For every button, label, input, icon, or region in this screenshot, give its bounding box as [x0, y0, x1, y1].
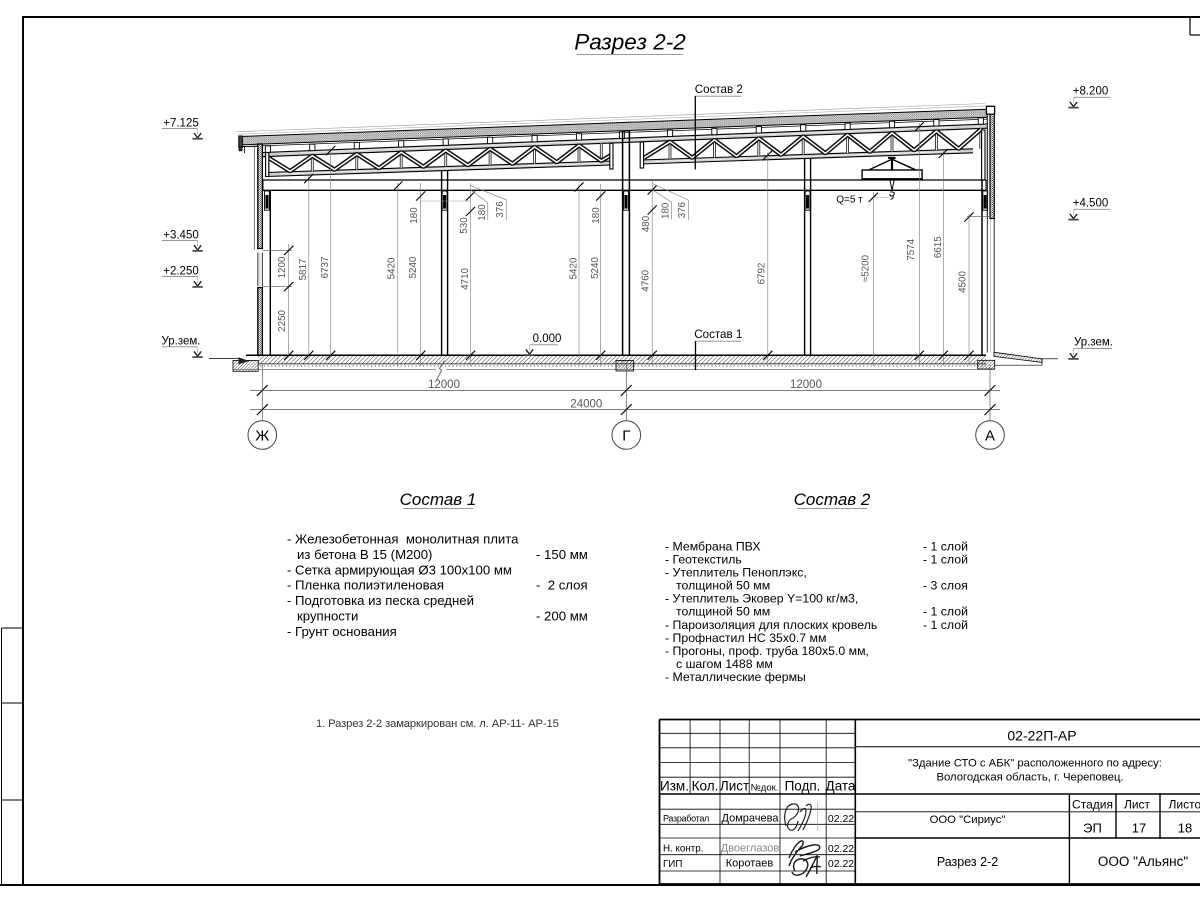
svg-text:4710: 4710 [460, 268, 471, 290]
svg-text:6615: 6615 [933, 236, 944, 258]
svg-text:Состав 2: Состав 2 [695, 83, 743, 96]
svg-text:А: А [985, 427, 995, 444]
svg-text:- Утеплитель Пеноплэкс,: - Утеплитель Пеноплэкс, [665, 566, 807, 580]
svg-text:1. Разрез 2-2 замаркирован см.: 1. Разрез 2-2 замаркирован см. л. АР-11-… [316, 718, 559, 730]
svg-text:Подп.: Подп. [785, 779, 821, 794]
svg-text:5240: 5240 [590, 257, 601, 279]
svg-text:Ж: Ж [255, 427, 269, 444]
svg-text:Изм.: Изм. [660, 779, 689, 794]
svg-text:7574: 7574 [906, 238, 917, 260]
svg-text:Ур.зем.: Ур.зем. [161, 336, 200, 348]
svg-text:5420: 5420 [386, 257, 397, 279]
svg-text:02-22П-АР: 02-22П-АР [1007, 728, 1076, 744]
svg-text:376: 376 [495, 201, 506, 218]
svg-text:18: 18 [1178, 821, 1192, 836]
svg-text:02.22: 02.22 [828, 843, 854, 855]
svg-text:- Грунт основания: - Грунт основания [287, 624, 397, 639]
svg-text:из бетона В 15 (М200): из бетона В 15 (М200) [297, 547, 432, 562]
svg-text:Двоеглазов: Двоеглазов [721, 843, 780, 855]
svg-text:- 3 слоя: - 3 слоя [923, 579, 968, 593]
svg-text:Разрез 2-2: Разрез 2-2 [574, 30, 686, 55]
svg-text:0.000: 0.000 [533, 333, 562, 345]
svg-text:- 1 слой: - 1 слой [923, 605, 968, 619]
svg-text:Листов: Листов [1169, 798, 1200, 812]
svg-text:- 1 слой: - 1 слой [923, 553, 968, 567]
svg-text:Н. контр.: Н. контр. [663, 844, 703, 855]
svg-text:- Подготовка из песка средней: - Подготовка из песка средней [287, 593, 474, 608]
svg-text:4760: 4760 [640, 269, 651, 291]
svg-text:530: 530 [459, 217, 470, 234]
svg-text:Домрачева: Домрачева [722, 813, 780, 825]
svg-text:180: 180 [591, 207, 602, 224]
svg-text:Кол.: Кол. [692, 779, 719, 794]
svg-text:Разработал: Разработал [663, 814, 709, 824]
svg-text:толщиной 50 мм: толщиной 50 мм [676, 605, 770, 619]
svg-text:6792: 6792 [757, 263, 768, 285]
svg-text:+2.250: +2.250 [163, 266, 199, 278]
svg-text:№док.: №док. [751, 783, 779, 794]
svg-text:02.22: 02.22 [828, 813, 854, 825]
svg-text:ООО "Альянс": ООО "Альянс" [1098, 854, 1188, 869]
svg-text:крупности: крупности [297, 609, 358, 624]
svg-text:5420: 5420 [568, 257, 579, 279]
svg-text:толщиной 50 мм: толщиной 50 мм [676, 579, 770, 593]
svg-text:- Сетка армирующая Ø3 100х100: - Сетка армирующая Ø3 100х100 мм [287, 562, 512, 577]
svg-text:12000: 12000 [790, 379, 822, 391]
svg-text:- Пленка полиэтиленовая: - Пленка полиэтиленовая [287, 578, 444, 593]
svg-text:- 200 мм: - 200 мм [536, 609, 588, 624]
svg-text:ГИП: ГИП [663, 859, 682, 870]
svg-text:Дата: Дата [826, 779, 856, 794]
svg-text:6737: 6737 [320, 257, 331, 279]
svg-text:Коротаев: Коротаев [726, 858, 774, 870]
svg-text:480: 480 [641, 215, 652, 232]
svg-text:- Пароизоляция для плоских кро: - Пароизоляция для плоских кровель [665, 618, 877, 632]
svg-text:≈5200: ≈5200 [861, 254, 872, 282]
svg-text:Состав 1: Состав 1 [400, 490, 477, 509]
svg-text:180: 180 [477, 204, 488, 221]
svg-text:- 2 слоя: - 2 слоя [536, 578, 588, 593]
svg-text:+7.125: +7.125 [163, 118, 199, 130]
svg-text:Q=5 т: Q=5 т [836, 195, 863, 206]
svg-text:376: 376 [677, 201, 688, 218]
svg-text:Лист: Лист [720, 779, 749, 794]
svg-text:Стадия: Стадия [1072, 798, 1113, 812]
svg-text:02.22: 02.22 [828, 858, 854, 870]
svg-text:- Утеплитель Эковер Y=100 кг/м: - Утеплитель Эковер Y=100 кг/м3, [665, 592, 858, 606]
svg-text:- 1 слой: - 1 слой [923, 540, 968, 554]
svg-text:Состав 2: Состав 2 [794, 490, 871, 509]
svg-text:4500: 4500 [957, 271, 968, 293]
svg-text:5240: 5240 [408, 256, 419, 278]
svg-text:Состав 1: Состав 1 [694, 328, 742, 341]
svg-text:- Металлические фермы: - Металлические фермы [665, 670, 806, 684]
svg-text:- Прогоны, проф. труба 180х5.0: - Прогоны, проф. труба 180х5.0 мм, [665, 644, 869, 658]
svg-text:ЭП: ЭП [1083, 821, 1102, 836]
svg-text:- Железобетонная монолитная п: - Железобетонная монолитная плита [287, 532, 519, 547]
svg-text:1200: 1200 [277, 256, 288, 278]
svg-text:Лист: Лист [1124, 798, 1151, 812]
svg-text:+3.450: +3.450 [163, 230, 199, 242]
svg-text:Вологодская область, г. Черепо: Вологодская область, г. Череповец. [936, 772, 1123, 784]
svg-text:5817: 5817 [298, 259, 309, 281]
svg-text:Ур.зем.: Ур.зем. [1074, 337, 1113, 349]
svg-text:+4.500: +4.500 [1073, 198, 1109, 210]
svg-text:+8.200: +8.200 [1073, 86, 1109, 98]
svg-text:180: 180 [661, 202, 672, 219]
svg-text:24000: 24000 [570, 398, 602, 410]
svg-text:ООО "Сириус": ООО "Сириус" [930, 814, 1006, 826]
svg-text:с шагом 1488 мм: с шагом 1488 мм [676, 657, 773, 671]
svg-text:Разрез 2-2: Разрез 2-2 [937, 855, 998, 869]
svg-text:12000: 12000 [428, 379, 460, 391]
svg-text:- 150 мм: - 150 мм [536, 547, 588, 562]
svg-text:- Геотекстиль: - Геотекстиль [665, 553, 742, 567]
svg-text:180: 180 [409, 207, 420, 224]
svg-text:17: 17 [1132, 821, 1146, 836]
svg-text:- Мембрана ПВХ: - Мембрана ПВХ [665, 540, 761, 554]
svg-text:2250: 2250 [277, 309, 288, 331]
svg-text:"Здание СТО с АБК" расположенн: "Здание СТО с АБК" расположенного по адр… [908, 758, 1162, 770]
svg-text:- Профнастил НС 35х0.7 мм: - Профнастил НС 35х0.7 мм [665, 631, 826, 645]
svg-text:- 1 слой: - 1 слой [923, 618, 968, 632]
svg-text:Г: Г [622, 427, 630, 444]
